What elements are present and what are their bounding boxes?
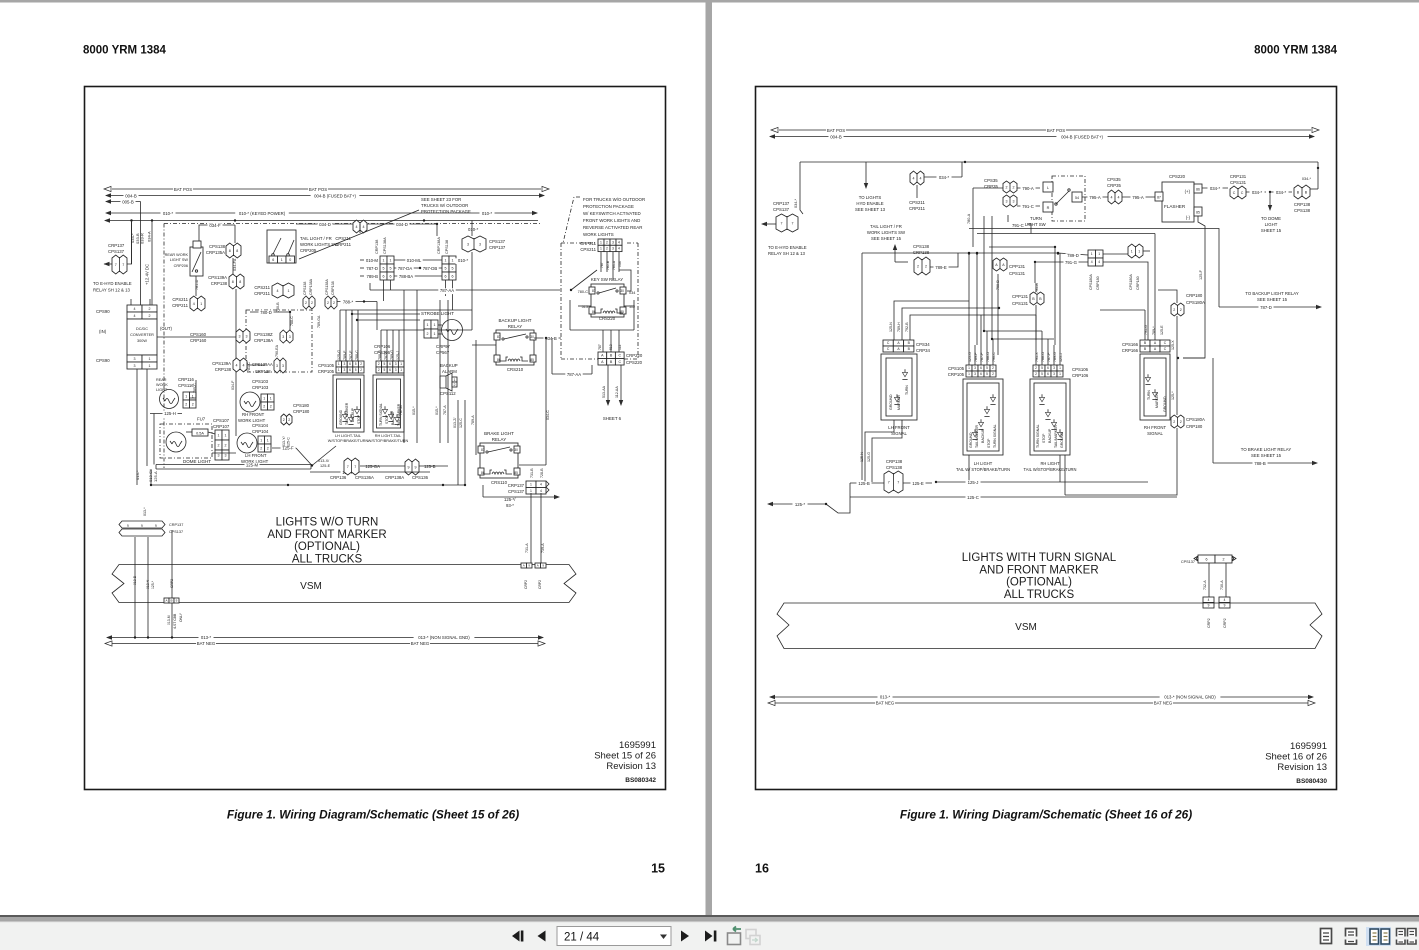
svg-text:4: 4 (1098, 260, 1100, 264)
svg-text:004-B: 004-B (830, 134, 842, 139)
svg-text:SEE SHEET 23 FOR: SEE SHEET 23 FOR (421, 197, 461, 202)
svg-text:3: 3 (1053, 372, 1055, 376)
svg-text:CRP206: CRP206 (174, 264, 188, 268)
svg-text:A: A (165, 599, 167, 603)
svg-text:CRP138: CRP138 (211, 281, 228, 286)
svg-text:6: 6 (1047, 372, 1049, 376)
svg-text:SHEET 6: SHEET 6 (603, 416, 622, 421)
svg-text:1: 1 (267, 438, 269, 442)
svg-text:L: L (1047, 186, 1049, 190)
svg-text:5: 5 (986, 366, 988, 370)
svg-text:15: 15 (651, 862, 665, 876)
svg-text:005-B: 005-B (122, 199, 134, 204)
svg-text:6: 6 (272, 258, 274, 262)
svg-text:(OPTIONAL): (OPTIONAL) (294, 541, 360, 553)
svg-text:3: 3 (612, 247, 614, 251)
svg-text:RELAY: RELAY (508, 324, 522, 329)
svg-text:013-*: 013-* (201, 635, 212, 640)
svg-text:2: 2 (218, 443, 220, 447)
svg-text:CPP131: CPP131 (1012, 294, 1029, 299)
svg-text:16: 16 (755, 862, 769, 876)
svg-text:85: 85 (514, 471, 518, 475)
svg-text:1: 1 (968, 366, 970, 370)
svg-text:KEY SW RELAY: KEY SW RELAY (591, 277, 623, 282)
svg-text:010-*: 010-* (482, 211, 493, 216)
svg-text:2: 2 (992, 366, 994, 370)
svg-text:STROBE LIGHT: STROBE LIGHT (421, 311, 454, 316)
svg-text:Figure 1. Wiring Diagram/Schem: Figure 1. Wiring Diagram/Schematic (Shee… (900, 808, 1192, 822)
svg-text:AND FRONT MARKER: AND FRONT MARKER (267, 529, 386, 541)
svg-text:034-D: 034-D (396, 222, 408, 227)
svg-text:CPS131: CPS131 (1012, 301, 1029, 306)
svg-text:5: 5 (384, 362, 386, 366)
svg-text:3: 3 (974, 372, 976, 376)
svg-text:787-AA: 787-AA (440, 288, 454, 293)
svg-text:013-Y/: 013-Y/ (282, 436, 286, 447)
svg-text:Sheet 16 of 26: Sheet 16 of 26 (1265, 752, 1327, 763)
svg-text:2: 2 (192, 402, 194, 406)
svg-text:790-A: 790-A (1022, 186, 1034, 191)
svg-text:3: 3 (276, 364, 278, 368)
svg-text:WORK: WORK (156, 383, 168, 387)
svg-text:125-M: 125-M (246, 462, 259, 467)
svg-text:CRP138: CRP138 (331, 281, 335, 295)
svg-text:1: 1 (1131, 249, 1133, 253)
svg-text:1695991: 1695991 (619, 740, 656, 751)
svg-text:4: 4 (356, 225, 358, 229)
svg-text:4: 4 (1208, 598, 1210, 602)
svg-text:GROUND: GROUND (339, 409, 343, 425)
svg-text:125-*: 125-* (1171, 391, 1175, 400)
svg-text:0: 0 (289, 258, 291, 262)
svg-text:CPS211: CPS211 (254, 285, 270, 290)
svg-text:CRP180: CRP180 (1136, 276, 1140, 290)
svg-text:013-*: 013-* (143, 507, 147, 516)
svg-text:034-*: 034-* (939, 175, 950, 180)
svg-text:013-* (NON SIGNAL GND): 013-* (NON SIGNAL GND) (418, 635, 470, 640)
svg-text:CRP211: CRP211 (254, 291, 271, 296)
svg-text:2: 2 (606, 240, 608, 244)
svg-text:4: 4 (134, 314, 136, 318)
svg-text:1: 1 (338, 362, 340, 366)
svg-text:+12.4V DC: +12.4V DC (145, 264, 150, 285)
svg-text:CRP138: CRP138 (375, 240, 379, 254)
svg-text:CRS110: CRS110 (491, 480, 508, 485)
svg-text:6: 6 (445, 274, 447, 278)
svg-text:CPS137: CPS137 (108, 249, 125, 254)
svg-text:CPS35: CPS35 (984, 178, 998, 183)
svg-text:BAT NEG: BAT NEG (1154, 701, 1173, 706)
svg-text:30: 30 (514, 448, 518, 452)
svg-text:BRAKE LIGHT: BRAKE LIGHT (484, 431, 514, 436)
svg-text:1: 1 (1059, 366, 1061, 370)
svg-text:788-C: 788-C (290, 316, 294, 326)
svg-text:B: B (170, 599, 172, 603)
svg-text:CRP138A: CRP138A (309, 278, 313, 295)
svg-text:ALARM: ALARM (442, 369, 457, 374)
svg-text:789-D: 789-D (1067, 253, 1079, 258)
svg-text:5: 5 (384, 368, 386, 372)
svg-text:CPP131: CPP131 (1009, 264, 1026, 269)
svg-text:8: 8 (229, 249, 231, 253)
svg-text:2: 2 (149, 307, 151, 311)
svg-text:SIGNAL: SIGNAL (1147, 431, 1163, 436)
svg-text:1: 1 (600, 247, 602, 251)
svg-text:3: 3 (218, 453, 220, 457)
svg-text:TAIL LIGHT / FR: TAIL LIGHT / FR (870, 224, 902, 229)
svg-text:CPS104: CPS104 (252, 423, 269, 428)
svg-text:789-E: 789-E (935, 265, 947, 270)
svg-text:CRP105: CRP105 (948, 372, 965, 377)
svg-text:SEE SHEET 15: SEE SHEET 15 (1251, 453, 1282, 458)
svg-text:4: 4 (134, 307, 136, 311)
svg-text:TURN: TURN (905, 385, 909, 395)
svg-text:CRP211: CRP211 (172, 303, 189, 308)
svg-text:013-*: 013-* (135, 470, 140, 480)
svg-text:CRP220: CRP220 (626, 353, 643, 358)
svg-text:CRP2: CRP2 (538, 580, 542, 589)
svg-text:BAT NEG: BAT NEG (197, 641, 216, 646)
svg-text:(OUT): (OUT) (160, 326, 173, 331)
svg-text:2: 2 (311, 301, 313, 305)
svg-text:3: 3 (282, 335, 284, 339)
svg-text:787-DA: 787-DA (398, 266, 413, 271)
svg-text:LIGHT: LIGHT (1265, 222, 1278, 227)
svg-text:1: 1 (400, 362, 402, 366)
svg-text:21 / 44: 21 / 44 (564, 932, 600, 944)
svg-text:CPS139AA: CPS139AA (252, 362, 273, 367)
svg-text:2: 2 (1173, 308, 1175, 312)
svg-text:CRP131: CRP131 (1230, 174, 1247, 179)
svg-text:CRP211: CRP211 (909, 206, 926, 211)
svg-text:LH LIGHT: LH LIGHT (974, 461, 993, 466)
svg-text:2: 2 (1013, 185, 1015, 189)
svg-text:2: 2 (1180, 308, 1182, 312)
svg-text:1695991: 1695991 (1290, 741, 1327, 752)
svg-text:4: 4 (1091, 260, 1093, 264)
svg-text:2: 2 (288, 418, 290, 422)
svg-text:781-C: 781-C (247, 362, 251, 372)
svg-text:3: 3 (974, 366, 976, 370)
svg-text:C: C (618, 360, 621, 364)
svg-text:CPS220: CPS220 (1169, 174, 1186, 179)
svg-text:034-A: 034-A (147, 231, 152, 242)
svg-text:730-A: 730-A (1220, 580, 1224, 590)
svg-text:STOP: STOP (987, 438, 991, 448)
svg-text:CRP205: CRP205 (300, 248, 317, 253)
svg-text:2: 2 (1006, 185, 1008, 189)
svg-text:7: 7 (347, 465, 349, 469)
svg-text:CPS166: CPS166 (1122, 342, 1139, 347)
svg-text:SEE SHEET 15: SEE SHEET 15 (1257, 297, 1288, 302)
svg-text:PROTECTION PACKAGE: PROTECTION PACKAGE (583, 204, 634, 209)
svg-text:2: 2 (1173, 420, 1175, 424)
svg-text:4: 4 (540, 482, 542, 486)
svg-text:VSM: VSM (300, 581, 322, 592)
svg-text:010-* (KEYED POWER): 010-* (KEYED POWER) (239, 211, 286, 216)
svg-text:3: 3 (479, 242, 481, 246)
svg-text:CRP138: CRP138 (913, 250, 930, 255)
svg-text:1: 1 (445, 258, 447, 262)
svg-text:CPS35: CPS35 (1107, 177, 1121, 182)
svg-text:1: 1 (200, 302, 202, 306)
svg-text:4: 4 (540, 489, 542, 493)
svg-text:Revision 13: Revision 13 (1277, 762, 1327, 773)
svg-text:013-*: 013-* (880, 695, 891, 700)
svg-text:013-M: 013-M (167, 615, 171, 625)
svg-text:013-*/: 013-*/ (146, 580, 150, 589)
svg-text:4: 4 (618, 247, 620, 251)
svg-text:300W: 300W (137, 339, 147, 343)
svg-text:CPS107: CPS107 (213, 418, 230, 423)
svg-text:125-H: 125-H (164, 411, 176, 416)
svg-text:125-*: 125-* (151, 580, 155, 589)
svg-text:CPS138: CPS138 (445, 240, 449, 254)
svg-text:LIGHT SW: LIGHT SW (170, 258, 189, 262)
svg-text:2: 2 (1223, 557, 1225, 561)
svg-text:6: 6 (1047, 366, 1049, 370)
svg-text:6: 6 (980, 372, 982, 376)
svg-text:GROUND: GROUND (1163, 396, 1167, 412)
svg-text:BAT POS: BAT POS (174, 187, 192, 192)
svg-text:CRP138: CRP138 (1294, 202, 1311, 207)
svg-text:GROUND: GROUND (969, 432, 973, 448)
svg-text:3: 3 (134, 364, 136, 368)
svg-text:2: 2 (327, 301, 329, 305)
svg-text:3: 3 (289, 335, 291, 339)
svg-text:TO BRAKE LIGHT RELAY: TO BRAKE LIGHT RELAY (1241, 447, 1292, 452)
svg-text:7: 7 (781, 221, 783, 225)
svg-text:SHEET 15: SHEET 15 (1261, 228, 1282, 233)
svg-text:A: A (523, 564, 525, 568)
svg-text:1: 1 (1091, 252, 1093, 256)
svg-text:125-E: 125-E (912, 481, 924, 486)
svg-text:6: 6 (389, 368, 391, 372)
svg-text:CPS137: CPS137 (489, 239, 506, 244)
svg-text:CRP138: CRP138 (255, 369, 271, 374)
svg-text:TRUCKS W/ OUTDOOR: TRUCKS W/ OUTDOOR (421, 203, 468, 208)
svg-text:4: 4 (236, 363, 238, 367)
svg-text:6: 6 (349, 362, 351, 366)
svg-text:795-A: 795-A (1089, 195, 1101, 200)
svg-text:CRP107: CRP107 (213, 424, 230, 429)
svg-text:TO E-HYD ENABLE: TO E-HYD ENABLE (768, 245, 807, 250)
svg-text:87: 87 (1157, 195, 1161, 199)
svg-text:SEE SHEET 13: SEE SHEET 13 (855, 207, 886, 212)
svg-text:Figure 1. Wiring Diagram/Schem: Figure 1. Wiring Diagram/Schematic (Shee… (227, 808, 519, 822)
svg-text:125-GA: 125-GA (365, 464, 380, 469)
svg-text:CRP180: CRP180 (293, 409, 310, 414)
svg-text:CRP116: CRP116 (178, 377, 195, 382)
svg-text:9: 9 (415, 465, 417, 469)
svg-text:795-A: 795-A (1132, 195, 1144, 200)
svg-text:BAT POS: BAT POS (1047, 128, 1065, 133)
svg-text:CPS138: CPS138 (913, 244, 930, 249)
svg-text:CRP137: CRP137 (508, 483, 525, 488)
svg-text:LH LIGHT-TAIL: LH LIGHT-TAIL (335, 434, 361, 438)
svg-text:7: 7 (792, 221, 794, 225)
svg-text:788-B: 788-B (1254, 461, 1266, 466)
svg-text:CPS211: CPS211 (580, 247, 596, 252)
svg-text:2: 2 (606, 247, 608, 251)
svg-text:5: 5 (383, 266, 385, 270)
svg-text:FU7: FU7 (197, 417, 206, 422)
svg-text:TO E-HYD ENABLE: TO E-HYD ENABLE (93, 281, 132, 286)
svg-text:9: 9 (1208, 603, 1210, 607)
svg-text:125-B: 125-B (858, 481, 870, 486)
svg-text:789-B: 789-B (367, 274, 379, 279)
svg-text:CPS138Z: CPS138Z (254, 332, 273, 337)
svg-text:MARKER: MARKER (897, 395, 901, 410)
svg-text:8000 YRM 1384: 8000 YRM 1384 (1254, 45, 1338, 57)
svg-text:2: 2 (267, 446, 269, 450)
svg-text:034-F: 034-F (231, 380, 235, 390)
svg-text:125-C: 125-C (967, 495, 979, 500)
svg-text:87: 87 (592, 289, 596, 293)
svg-text:FLASHER: FLASHER (1164, 204, 1186, 209)
svg-text:LH FRONT: LH FRONT (245, 453, 267, 458)
svg-text:2: 2 (1035, 372, 1037, 376)
svg-text:125-N: 125-N (860, 452, 864, 462)
svg-text:1: 1 (1098, 252, 1100, 256)
svg-text:010-*: 010-* (468, 227, 479, 232)
svg-text:(-): (-) (1186, 215, 1191, 220)
svg-text:3: 3 (1053, 366, 1055, 370)
svg-text:CRP211: CRP211 (580, 241, 597, 246)
svg-text:1: 1 (288, 289, 290, 293)
svg-text:010-M: 010-M (366, 258, 379, 263)
svg-text:1: 1 (400, 368, 402, 372)
svg-text:7: 7 (888, 480, 890, 484)
svg-text:2: 2 (427, 332, 429, 336)
svg-text:1: 1 (260, 438, 262, 442)
svg-text:125-*: 125-* (795, 502, 806, 507)
svg-text:2: 2 (270, 404, 272, 408)
svg-text:85: 85 (530, 358, 534, 362)
svg-text:CPS105: CPS105 (318, 363, 335, 368)
svg-text:033-R: 033-R (140, 233, 145, 244)
svg-text:2: 2 (149, 314, 151, 318)
svg-text:4: 4 (920, 176, 922, 180)
svg-text:BAT POS: BAT POS (827, 128, 845, 133)
svg-text:2: 2 (378, 362, 380, 366)
svg-text:CRP138: CRP138 (886, 459, 903, 464)
svg-text:787-B: 787-B (399, 405, 403, 415)
svg-text:513-AA: 513-AA (602, 385, 606, 398)
svg-text:2: 2 (992, 372, 994, 376)
svg-text:1: 1 (390, 258, 392, 262)
svg-text:728-B: 728-B (540, 468, 544, 478)
svg-text:CRP138A: CRP138A (437, 237, 441, 254)
svg-text:VSM: VSM (1015, 622, 1037, 633)
svg-text:112-AA: 112-AA (615, 386, 619, 398)
svg-text:3: 3 (1013, 199, 1015, 203)
svg-text:CRP136: CRP136 (330, 475, 347, 480)
svg-text:CPS137: CPS137 (773, 207, 790, 212)
svg-text:CPS211: CPS211 (909, 200, 925, 205)
svg-text:2: 2 (185, 402, 187, 406)
svg-text:BAT NEG: BAT NEG (876, 701, 895, 706)
svg-text:1: 1 (225, 433, 227, 437)
svg-text:731-B: 731-B (530, 468, 534, 478)
svg-text:787-D: 787-D (1260, 305, 1272, 310)
svg-text:CPS138: CPS138 (209, 244, 226, 249)
svg-text:1: 1 (383, 258, 385, 262)
svg-text:CPS90: CPS90 (96, 358, 110, 363)
svg-text:CPS139A: CPS139A (208, 275, 227, 280)
svg-text:4: 4 (618, 240, 620, 244)
svg-text:CPS136A: CPS136A (355, 475, 374, 480)
svg-text:1: 1 (530, 489, 532, 493)
svg-text:TAIL/MARKER: TAIL/MARKER (1054, 424, 1058, 448)
svg-text:3: 3 (239, 334, 241, 338)
svg-text:790-EA: 790-EA (275, 344, 279, 357)
svg-text:CRP166: CRP166 (1122, 348, 1139, 353)
svg-text:3: 3 (612, 240, 614, 244)
svg-text:1: 1 (149, 357, 151, 361)
svg-text:125-X: 125-X (1171, 340, 1175, 350)
svg-text:R: R (1047, 206, 1050, 210)
svg-text:6: 6 (389, 362, 391, 366)
svg-text:013-Z/: 013-Z/ (453, 418, 457, 428)
svg-text:7: 7 (115, 263, 117, 267)
svg-text:9: 9 (1224, 603, 1226, 607)
svg-text:LIGHTS W/O TURN: LIGHTS W/O TURN (276, 517, 379, 529)
svg-text:C: C (618, 354, 621, 358)
svg-text:010-*: 010-* (458, 258, 469, 263)
svg-text:1: 1 (452, 258, 454, 262)
svg-text:CRP104: CRP104 (252, 429, 269, 434)
svg-text:787-D: 787-D (366, 266, 378, 271)
svg-text:3: 3 (1006, 199, 1008, 203)
svg-text:CRS210: CRS210 (507, 367, 524, 372)
svg-text:004-B (FUSED BAT+): 004-B (FUSED BAT+) (1061, 134, 1103, 139)
svg-text:6: 6 (383, 274, 385, 278)
svg-text:739-A: 739-A (541, 543, 545, 553)
svg-text:CRP103: CRP103 (252, 385, 269, 390)
svg-text:2: 2 (360, 362, 362, 366)
svg-text:780-C: 780-C (578, 290, 589, 294)
svg-text:034-*: 034-* (794, 198, 798, 208)
svg-text:WORK LIGHTS SW: WORK LIGHTS SW (867, 230, 906, 235)
svg-text:MARKER: MARKER (1155, 393, 1159, 408)
svg-text:034-D: 034-D (319, 222, 331, 227)
svg-text:9: 9 (155, 524, 157, 528)
svg-text:1: 1 (1059, 372, 1061, 376)
svg-text:125-C: 125-C (287, 437, 291, 447)
svg-text:TURN SIGNAL: TURN SIGNAL (1036, 424, 1040, 448)
svg-text:1: 1 (149, 364, 151, 368)
svg-text:TAIL W/ STOP/BRAKE/TURN: TAIL W/ STOP/BRAKE/TURN (956, 467, 1010, 472)
svg-text:2: 2 (333, 301, 335, 305)
svg-text:CPS180: CPS180 (293, 403, 310, 408)
svg-text:789-A: 789-A (471, 415, 475, 425)
svg-text:791-G: 791-G (1065, 260, 1078, 265)
svg-text:PROTECTION PACKAGE: PROTECTION PACKAGE (421, 209, 471, 214)
svg-text:3: 3 (344, 362, 346, 366)
svg-text:780-A: 780-A (967, 213, 971, 224)
svg-text:93-*: 93-* (506, 503, 514, 508)
svg-text:87: 87 (497, 335, 501, 339)
svg-text:034-*: 034-* (1302, 177, 1312, 181)
svg-text:WORK LIGHTS SW: WORK LIGHTS SW (300, 242, 339, 247)
svg-text:CPS180A: CPS180A (1089, 274, 1093, 290)
svg-text:CPS137: CPS137 (1181, 560, 1195, 564)
svg-text:87: 87 (481, 448, 485, 452)
svg-text:CRP34: CRP34 (916, 348, 930, 353)
svg-text:3: 3 (225, 453, 227, 457)
svg-text:CPS106: CPS106 (1072, 367, 1089, 372)
